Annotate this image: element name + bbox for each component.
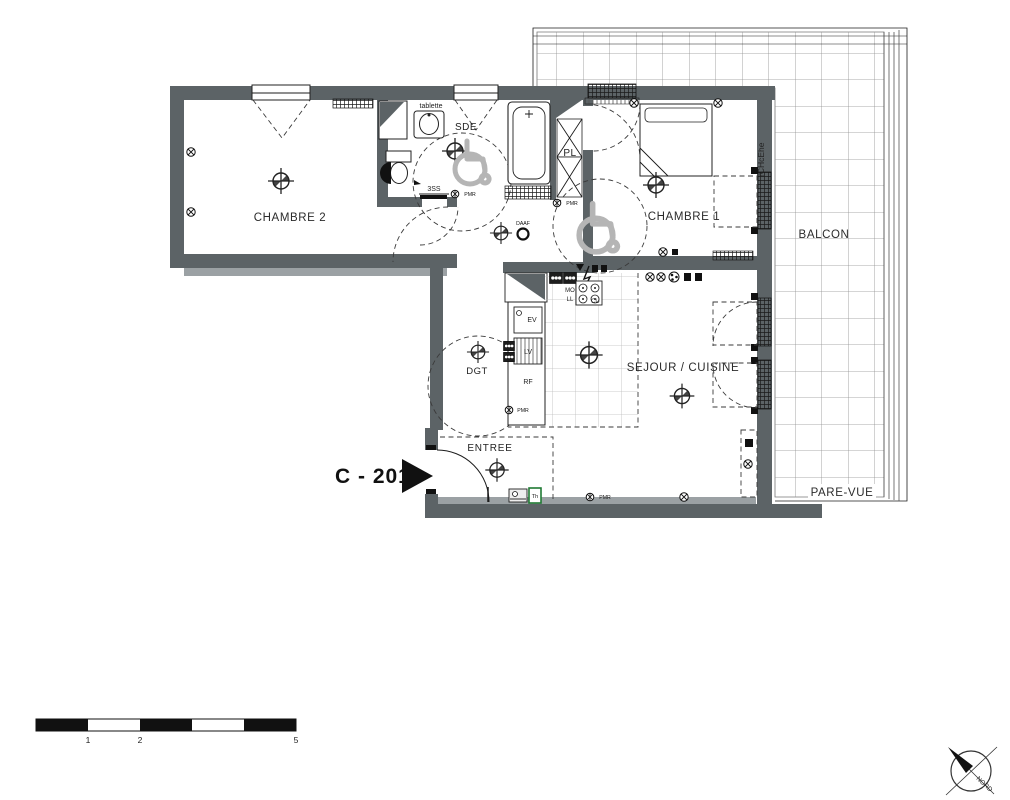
door-jamb-mark <box>426 489 436 494</box>
room-label-sde: SDE <box>455 122 477 133</box>
vanity-corner <box>379 101 407 139</box>
room-label-pare-vue: PARE-VUE <box>811 487 874 499</box>
socket-icon <box>630 99 638 107</box>
scale-tick-2: 2 <box>138 735 143 745</box>
pmr-label: PMR <box>464 192 476 198</box>
pmr-wheel-icon <box>451 190 459 198</box>
appliance-icon <box>503 352 514 361</box>
scale-bar: 1 2 5 <box>36 719 299 745</box>
room-label-dgt: DGT <box>466 366 488 377</box>
window-chambre1-coffre <box>585 84 640 159</box>
radiator-icon <box>713 251 753 260</box>
scale-tick-1: 1 <box>86 735 91 745</box>
appliance-icon <box>550 273 563 284</box>
interphone-box <box>509 489 527 502</box>
room-label-sejour-cuisine: SEJOUR / CUISINE <box>627 362 739 374</box>
entrance-arrow-icon <box>402 459 433 493</box>
north-compass: NORD <box>946 747 997 795</box>
radiator-icon <box>505 186 551 199</box>
bathtub-icon <box>508 102 550 184</box>
ceiling-light-icon <box>485 458 508 481</box>
pare-vue-screen <box>884 30 899 501</box>
room-label-chambre2: CHAMBRE 2 <box>254 212 327 224</box>
socket-icon <box>187 148 195 156</box>
daaf-smoke-detector-icon <box>518 229 529 240</box>
door-jamb-mark <box>426 445 436 450</box>
pmr-label: PMR <box>599 495 611 501</box>
room-chambre2: CHAMBRE 2 <box>187 148 326 224</box>
micro-onde-label: MO <box>565 288 575 294</box>
pmr-label: PMR <box>566 201 578 207</box>
pmr-wheel-icon <box>553 199 561 207</box>
scale-tick-5: 5 <box>294 735 299 745</box>
appliance-icon <box>503 341 514 350</box>
room-label-balcon: BALCON <box>799 229 850 241</box>
socket-icon <box>680 493 688 501</box>
pmr-wheel-icon <box>586 493 594 501</box>
appliance-icon <box>564 273 577 284</box>
socket-icon <box>744 460 752 468</box>
socket-icon <box>714 99 722 107</box>
tablette-label: tablette <box>420 103 443 110</box>
refrigerateur-label: RF <box>523 379 532 386</box>
room-sde: tablette SDE 3SS PMR <box>379 101 551 231</box>
ceiling-light-icon <box>490 222 512 244</box>
closet-pl: PL <box>556 100 582 197</box>
entrance-door-swing <box>437 450 489 502</box>
lave-linge-label: LL <box>567 297 574 303</box>
room-label-pl: PL <box>563 148 576 159</box>
room-label-entree: ENTREE <box>467 443 512 454</box>
wall-annotation-text: rCHcEhe <box>756 142 766 177</box>
technical-niche <box>505 273 547 302</box>
pmr-wheel-icon <box>505 406 513 414</box>
socket-icon <box>187 208 195 216</box>
sink-icon: EV <box>514 307 542 333</box>
door-swing-chambre1 <box>593 104 640 151</box>
unit-label: C - 201 <box>335 465 411 488</box>
floor-plan-sheet: BALCON PARE-VUE <box>0 0 1010 800</box>
dishwasher-icon: LV <box>514 338 542 364</box>
door-swing <box>713 302 757 346</box>
daaf-label: DAAF <box>516 221 530 227</box>
lave-vaisselle-label: LV <box>524 349 532 356</box>
window-allege-dashed <box>714 176 757 227</box>
ceiling-light-icon <box>670 384 695 409</box>
room-label-chambre1: CHAMBRE 1 <box>648 211 721 223</box>
thermostat-label: Th <box>532 494 538 500</box>
wall-grille-chambre2 <box>333 99 373 108</box>
ceiling-light-icon <box>467 341 489 363</box>
thermostat-box: Th <box>529 488 541 503</box>
pmr-label: PMR <box>517 408 529 414</box>
door-swing-chambre2 <box>393 207 448 262</box>
north-label: NORD <box>975 775 994 793</box>
door-swing-sde <box>420 207 458 245</box>
kitchen: MO LL CU EV LV RF PMR <box>503 264 638 427</box>
room-entree: ENTREE Th <box>437 437 553 503</box>
shower-drain-label: 3SS <box>427 186 441 193</box>
shower-drain: 3SS <box>414 180 449 199</box>
ceiling-light-icon <box>268 168 294 194</box>
socket-icon <box>659 248 667 256</box>
evier-label: EV <box>527 317 537 324</box>
socket-icon <box>646 273 654 281</box>
vmc-icon <box>669 272 679 282</box>
washbasin-icon <box>414 111 444 138</box>
window-chambre2 <box>252 85 310 138</box>
unit-callout: C - 201 <box>335 459 433 493</box>
floor-plan-drawing: BALCON PARE-VUE <box>0 0 1010 800</box>
cuisson-label: CU <box>591 299 600 305</box>
bed-icon <box>640 104 712 176</box>
socket-icon <box>657 273 665 281</box>
